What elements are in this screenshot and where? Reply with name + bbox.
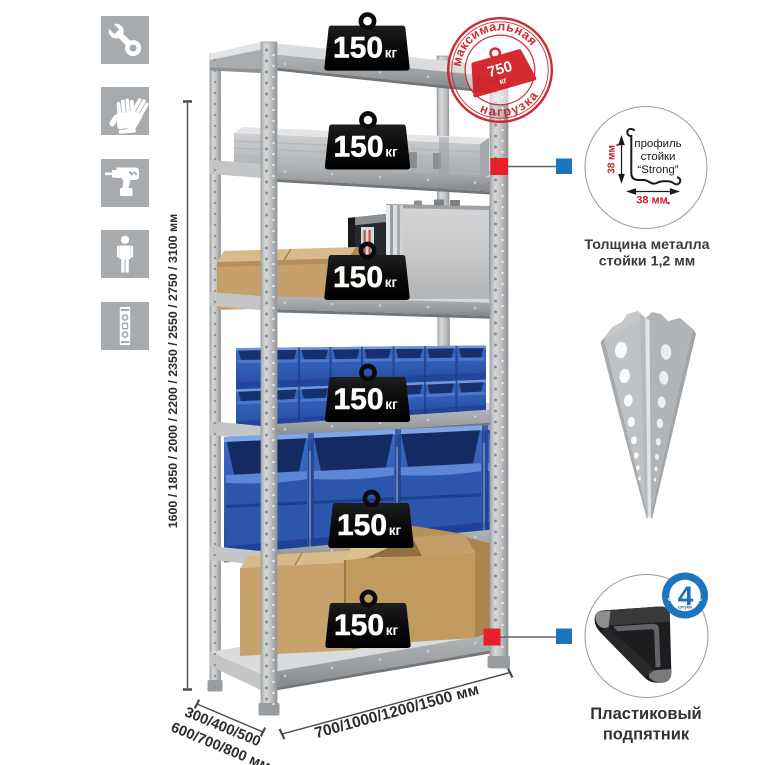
svg-text:штуки: штуки	[678, 605, 692, 610]
svg-text:кг: кг	[385, 275, 398, 290]
svg-text:150: 150	[333, 261, 383, 294]
svg-text:кг: кг	[385, 397, 398, 412]
svg-text:кг: кг	[389, 523, 402, 538]
svg-text:профиль: профиль	[634, 138, 681, 150]
svg-text:Пластиковый: Пластиковый	[590, 705, 701, 723]
svg-text:38 мм: 38 мм	[636, 195, 668, 207]
svg-text:“Strong”: “Strong”	[637, 164, 678, 176]
svg-text:150: 150	[334, 609, 384, 642]
svg-text:150: 150	[333, 131, 383, 164]
svg-text:кг: кг	[385, 145, 398, 160]
svg-text:кг: кг	[386, 623, 399, 638]
svg-text:стойки: стойки	[641, 151, 676, 163]
svg-text:кг: кг	[385, 46, 398, 61]
svg-text:1600 / 1850 / 2000 / 2200 / 23: 1600 / 1850 / 2000 / 2200 / 2350 / 2550 …	[166, 214, 180, 529]
svg-text:Толщина металла: Толщина металла	[584, 237, 709, 253]
svg-text:150: 150	[337, 509, 387, 542]
svg-text:150: 150	[333, 32, 383, 65]
svg-text:150: 150	[333, 383, 383, 416]
svg-text:38 мм: 38 мм	[607, 145, 618, 174]
svg-text:стойки 1,2 мм: стойки 1,2 мм	[599, 254, 695, 270]
svg-text:подпятник: подпятник	[603, 726, 690, 744]
